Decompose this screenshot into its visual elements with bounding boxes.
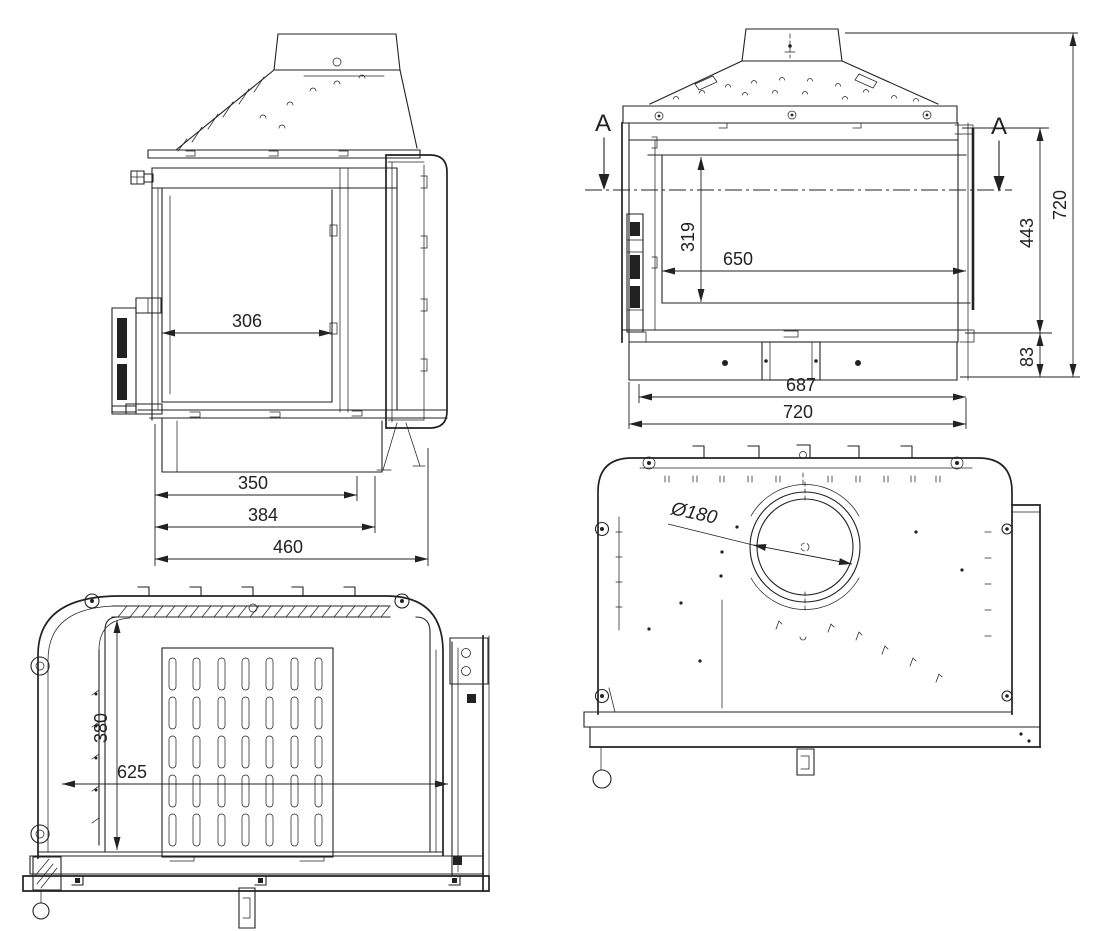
dimension-83-label: 83 bbox=[1017, 347, 1037, 367]
dimension-319-label: 319 bbox=[678, 222, 698, 252]
dimension-625-label: 625 bbox=[117, 762, 147, 782]
dimension-443-label: 443 bbox=[1017, 218, 1037, 248]
dimension-650-label: 650 bbox=[723, 249, 753, 269]
dimension-350-label: 350 bbox=[238, 473, 268, 493]
dimension-720-width-label: 720 bbox=[783, 402, 813, 422]
dimension-306-label: 306 bbox=[232, 311, 262, 331]
collar-center-mark bbox=[788, 44, 792, 48]
dimension-384-label: 384 bbox=[248, 505, 278, 525]
dimension-720-height-label: 720 bbox=[1050, 190, 1070, 220]
section-label-right: A bbox=[991, 113, 1007, 140]
section-label-left: A bbox=[595, 110, 611, 137]
technical-drawing-page: 306 350 384 460 bbox=[0, 0, 1100, 931]
dimension-687-label: 687 bbox=[786, 375, 816, 395]
dimension-380-label: 380 bbox=[91, 713, 111, 743]
dimension-460-label: 460 bbox=[273, 537, 303, 557]
fireplace-insert-technical-drawing: 306 350 384 460 bbox=[0, 0, 1100, 931]
